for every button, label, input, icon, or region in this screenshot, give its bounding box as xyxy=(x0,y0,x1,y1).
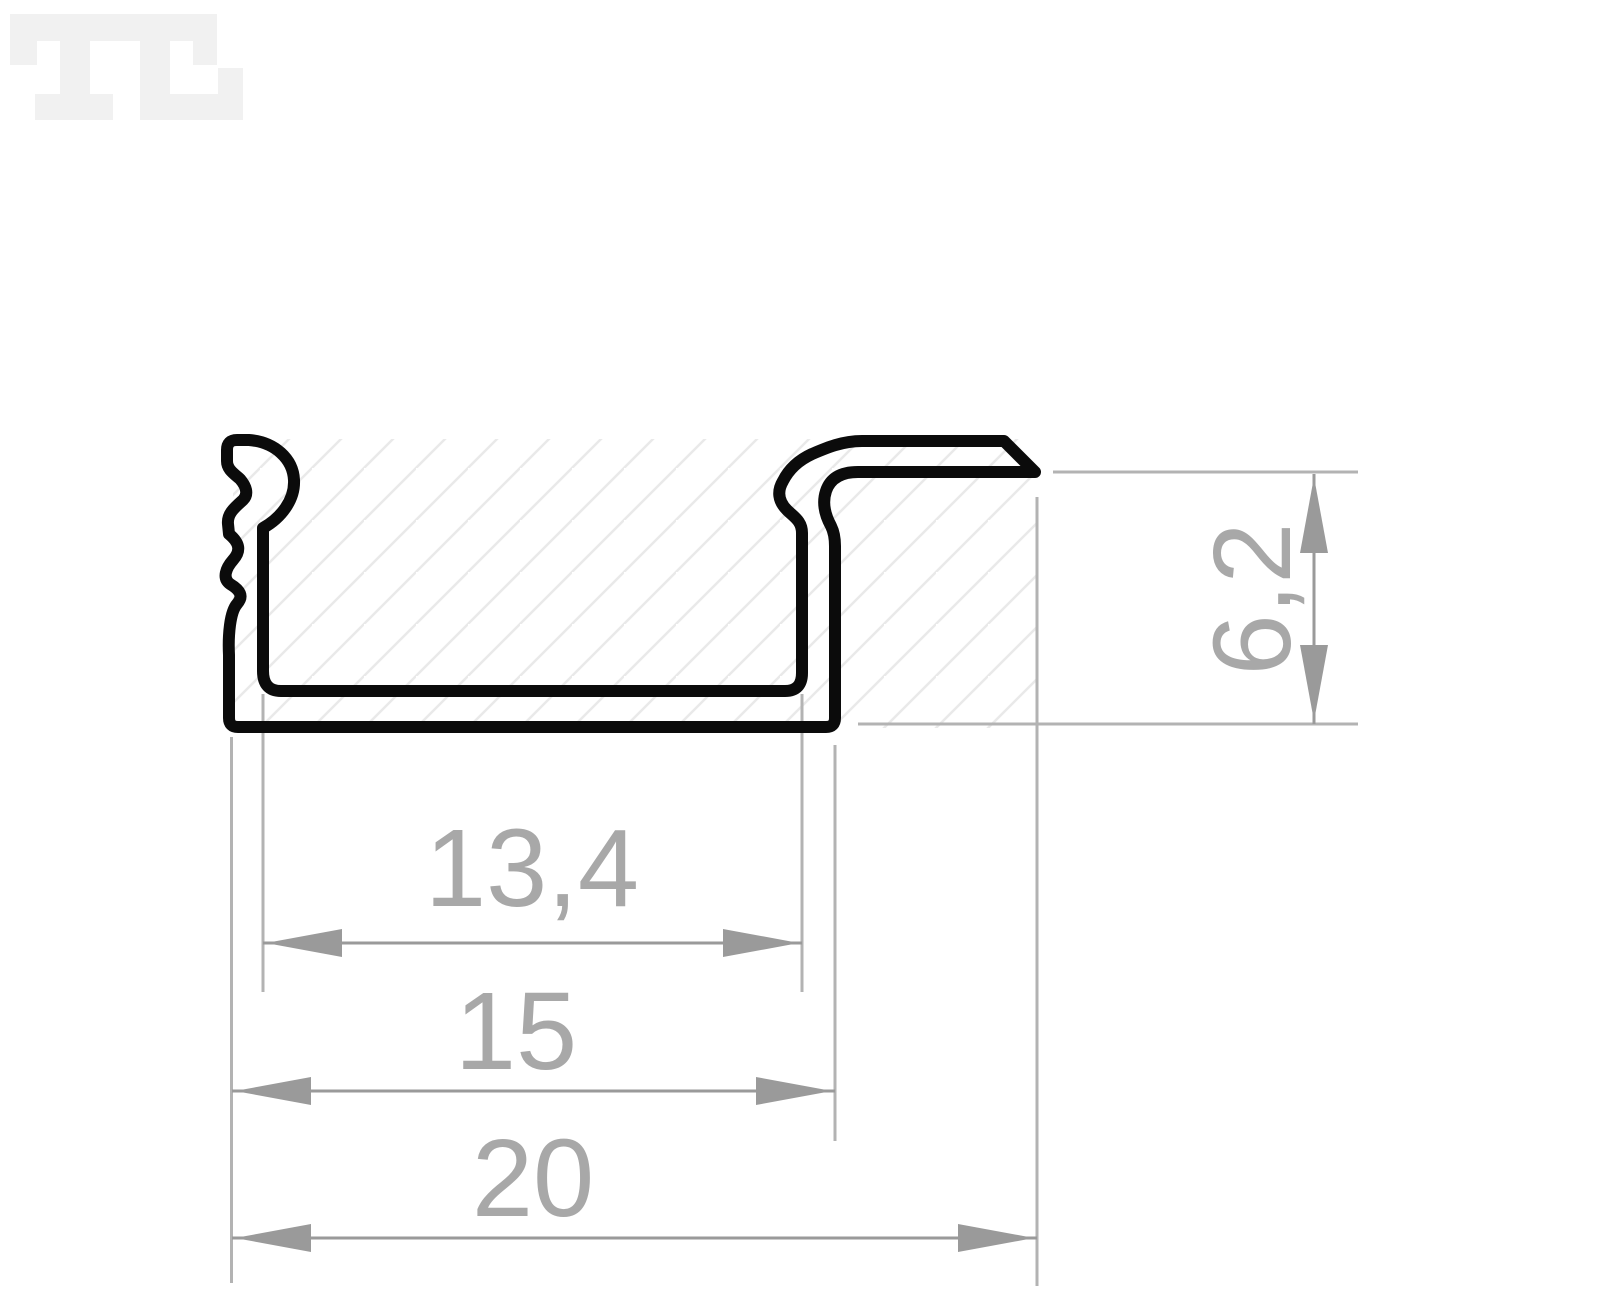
logo-block xyxy=(140,41,170,94)
technical-drawing-canvas: 13,4 15 20 6,2 xyxy=(0,0,1600,1310)
dimension-label-height: 6,2 xyxy=(1191,523,1314,676)
dimension-total-width: 20 xyxy=(232,1117,1037,1252)
logo-block xyxy=(10,14,217,41)
arrow-left-icon xyxy=(235,1224,311,1252)
brand-watermark-logo xyxy=(10,14,243,120)
logo-block xyxy=(218,68,243,120)
logo-block xyxy=(193,41,217,65)
arrow-left-icon xyxy=(235,1077,311,1105)
dimension-outer-width: 15 xyxy=(232,970,835,1105)
technical-drawing-page: 13,4 15 20 6,2 xyxy=(0,0,1600,1310)
arrow-right-icon xyxy=(723,929,799,957)
arrow-right-icon xyxy=(958,1224,1034,1252)
dimension-height: 6,2 xyxy=(1191,474,1328,724)
logo-block xyxy=(35,94,113,120)
dimension-inner-width: 13,4 xyxy=(263,807,802,957)
dimension-label-total-width: 20 xyxy=(472,1117,594,1240)
section-hatch xyxy=(233,439,1037,728)
arrow-left-icon xyxy=(266,929,342,957)
logo-block xyxy=(60,41,90,94)
arrow-right-icon xyxy=(756,1077,832,1105)
dimension-label-inner-width: 13,4 xyxy=(425,807,639,930)
logo-block xyxy=(10,41,37,65)
dimension-label-outer-width: 15 xyxy=(455,970,577,1093)
